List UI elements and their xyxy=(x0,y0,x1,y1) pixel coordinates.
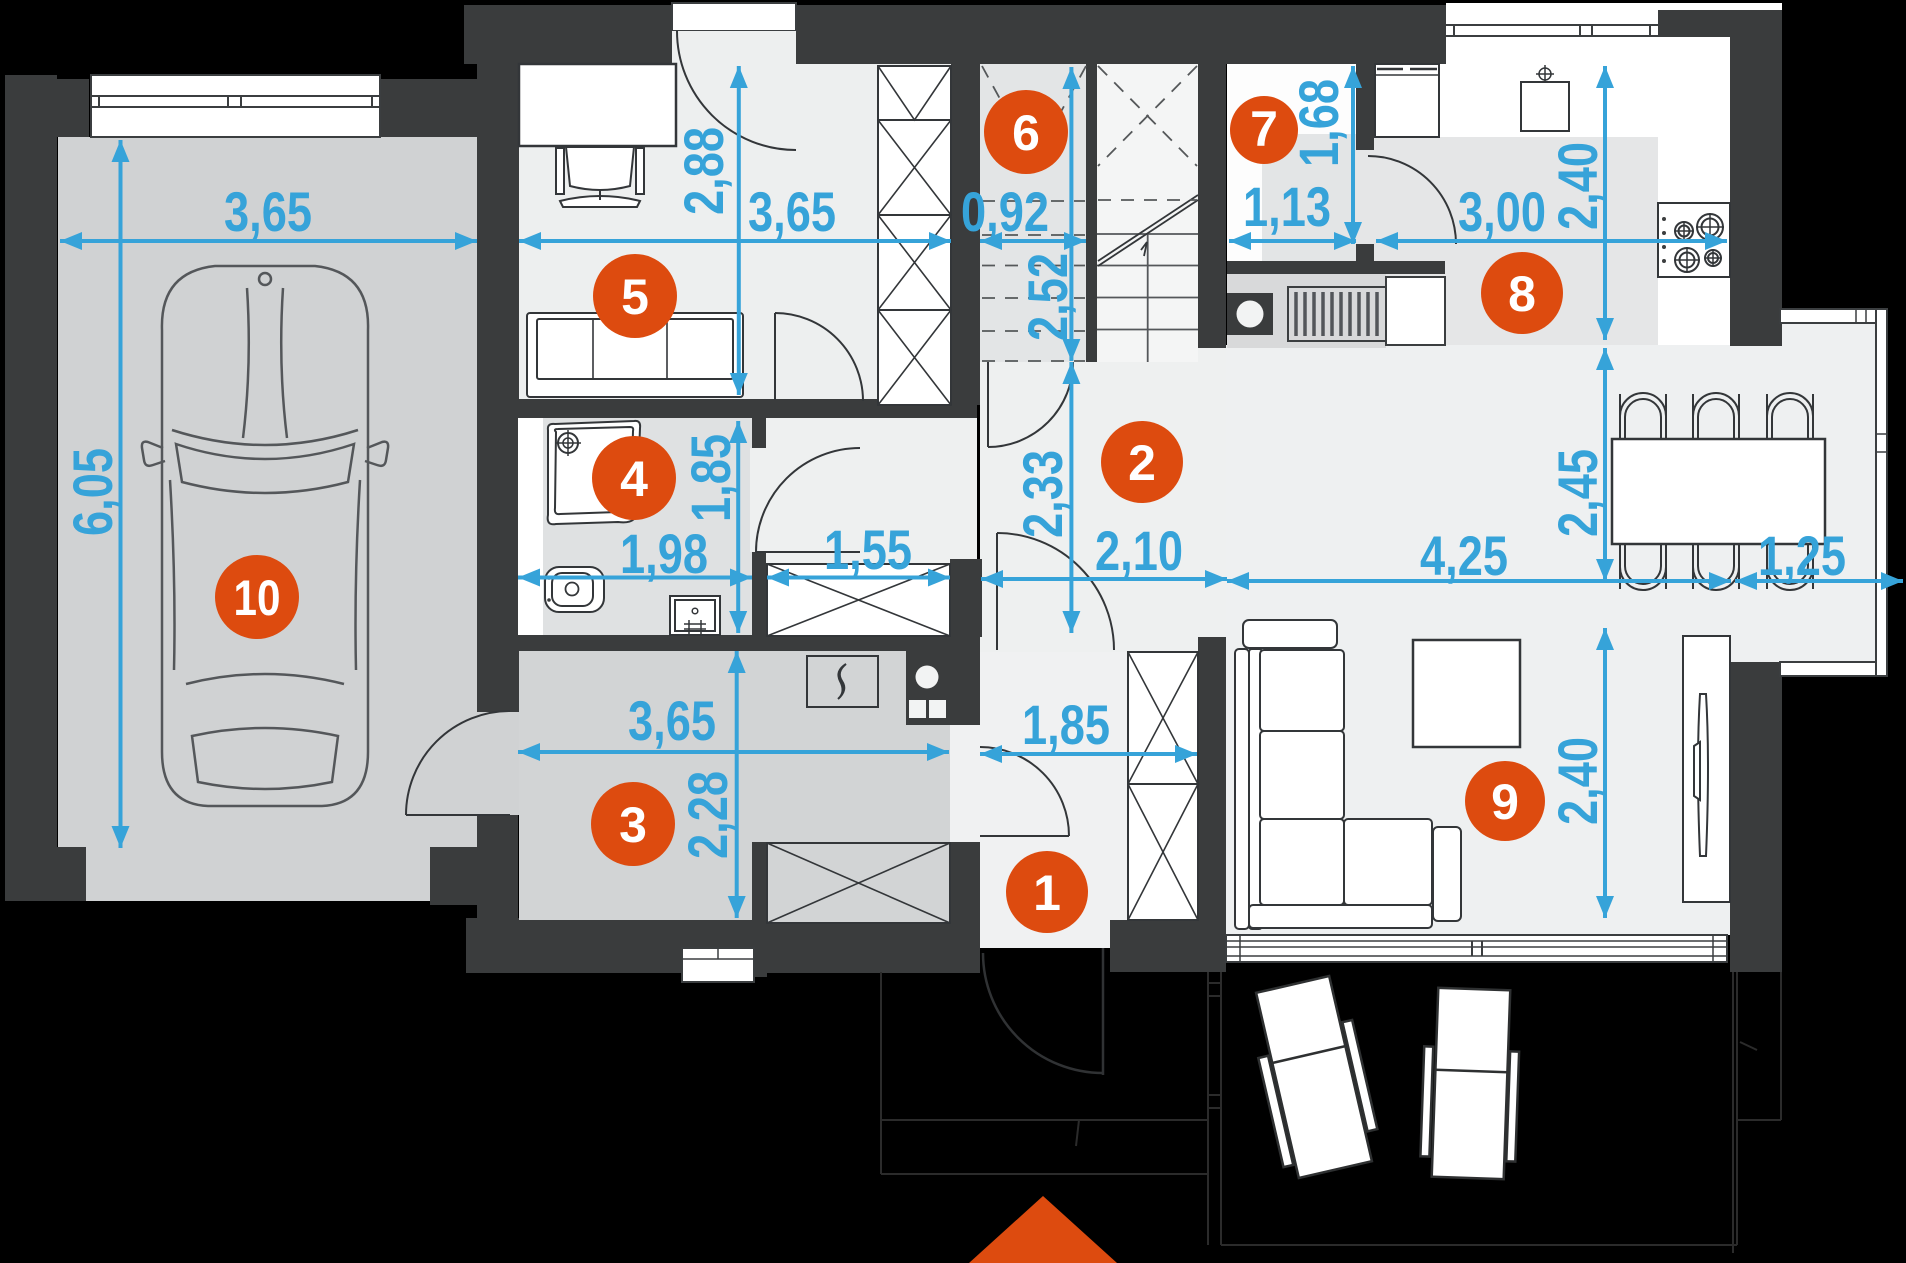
svg-text:4: 4 xyxy=(620,451,648,507)
svg-text:10: 10 xyxy=(234,570,281,626)
svg-text:2,10: 2,10 xyxy=(1095,519,1183,582)
svg-text:1: 1 xyxy=(1033,865,1061,921)
svg-text:3,65: 3,65 xyxy=(748,180,836,243)
svg-text:2,40: 2,40 xyxy=(1546,142,1609,230)
svg-text:1,25: 1,25 xyxy=(1758,524,1846,587)
svg-text:3,65: 3,65 xyxy=(224,180,312,243)
svg-text:4,25: 4,25 xyxy=(1420,524,1508,587)
svg-text:9: 9 xyxy=(1491,774,1519,830)
svg-text:2,45: 2,45 xyxy=(1546,449,1609,537)
svg-text:3,00: 3,00 xyxy=(1458,180,1546,243)
svg-text:2,33: 2,33 xyxy=(1011,450,1074,538)
svg-text:1,55: 1,55 xyxy=(824,518,912,581)
svg-text:2,88: 2,88 xyxy=(672,127,735,215)
svg-text:2,52: 2,52 xyxy=(1016,253,1079,341)
svg-text:2,28: 2,28 xyxy=(676,771,739,859)
svg-text:8: 8 xyxy=(1508,266,1536,322)
svg-text:5: 5 xyxy=(621,269,649,325)
svg-text:6,05: 6,05 xyxy=(61,448,124,536)
svg-text:3: 3 xyxy=(619,797,647,853)
svg-text:1,13: 1,13 xyxy=(1243,175,1331,238)
svg-text:1,85: 1,85 xyxy=(679,434,742,522)
svg-text:7: 7 xyxy=(1250,101,1278,157)
svg-text:1,85: 1,85 xyxy=(1022,693,1110,756)
svg-text:1,98: 1,98 xyxy=(620,522,708,585)
svg-text:6: 6 xyxy=(1012,105,1040,161)
svg-text:3,65: 3,65 xyxy=(628,689,716,752)
svg-text:2: 2 xyxy=(1128,435,1156,491)
svg-text:0,92: 0,92 xyxy=(961,180,1049,243)
svg-text:2,40: 2,40 xyxy=(1546,737,1609,825)
